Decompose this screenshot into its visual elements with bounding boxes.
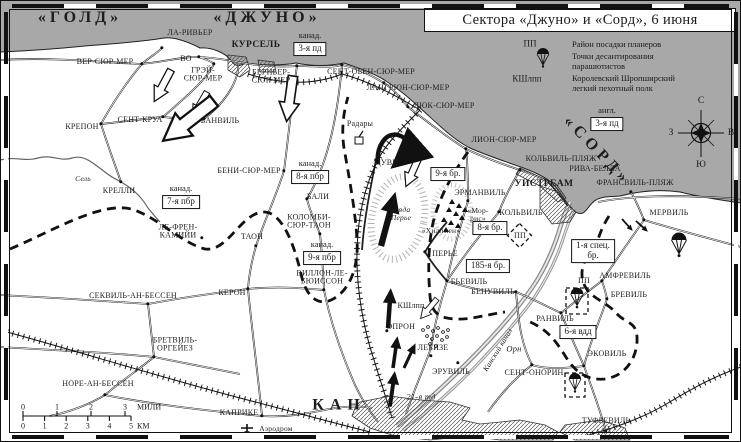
place-label: Радары xyxy=(347,120,373,128)
town-dot xyxy=(260,414,263,417)
place-label: ЛИОН-СЮР-МЕР xyxy=(472,136,537,144)
place-label: СЕНТ-ОБЕН-СЮР-МЕР xyxy=(327,68,415,76)
legend-text-glider: Район посадки планеров xyxy=(572,39,661,49)
scale-km-tick: 4 xyxy=(107,422,111,431)
place-label: ДУВР xyxy=(375,159,397,167)
place-label: БЕРНЬЕР- СЮР-МЕР xyxy=(252,69,291,86)
town-dot xyxy=(406,105,409,108)
place-label: Орн xyxy=(506,345,521,354)
place-label: ЭКОВИЛЬ xyxy=(588,350,627,358)
place-label: БАЛИ xyxy=(307,193,329,201)
town-dot xyxy=(254,244,257,247)
place-label: ЛЕ-ФРЕН- КАМИЙИ xyxy=(159,224,198,241)
place-label: БАНВИЛЬ xyxy=(201,117,240,125)
town-dot xyxy=(146,302,149,305)
unit-box: 9-я пбр xyxy=(303,251,341,265)
scale-km-tick: 5 xyxy=(129,422,133,431)
unit-box: 7-я пбр xyxy=(162,195,200,209)
place-label: ФРАНСВИЛЬ-ПЛЯЖ xyxy=(597,179,674,187)
place-label: КАПРИКЕ xyxy=(220,409,259,417)
unit-box: 1-я спец. бр. xyxy=(571,239,615,263)
place-label: БРЕВИЛЬ xyxy=(611,291,647,299)
unit-prefix-label: канад. xyxy=(311,239,334,249)
unit-prefix-label: канад. xyxy=(170,183,193,193)
scale-km-tick: 0 xyxy=(21,422,25,431)
place-label: ТУФРЕВИЛЬ xyxy=(582,417,631,425)
place-label: СЕНТ-ОНОРИН xyxy=(504,369,563,377)
town-dot xyxy=(318,232,321,235)
town-dot xyxy=(642,218,645,221)
place-label: ПЕРЬЕ xyxy=(432,250,458,258)
place-label: АМФРЕВИЛЬ xyxy=(599,272,650,280)
town-dot xyxy=(99,122,102,125)
place-label: БРЕТВИЛЬ- ОРГЕЙЕЗ xyxy=(153,337,197,354)
town-dot xyxy=(140,62,143,65)
scale-km-tick: 3 xyxy=(86,422,90,431)
town-dot xyxy=(629,190,632,193)
town-dot xyxy=(466,199,469,202)
unit-prefix-label: канад. xyxy=(299,158,322,168)
town-dot xyxy=(423,250,426,253)
town-dot xyxy=(197,55,200,58)
place-label: ЭРМАНВИЛЬ xyxy=(454,189,505,197)
unit-box: 8-я бр. xyxy=(472,221,507,235)
town-dot xyxy=(152,355,155,358)
place-label: БЬЕВИЛЬ xyxy=(451,278,488,286)
town-dot xyxy=(160,46,163,49)
place-label: КРЕЛЛИ xyxy=(103,187,135,195)
town-dot xyxy=(322,288,325,291)
scale-km-tick: 1 xyxy=(43,422,47,431)
place-label: КОЛОМБИ- СЮР-ТАОН xyxy=(287,214,331,231)
place-label: ВИЛЛОН-ЛЕ- БЮИССОН xyxy=(296,270,347,287)
unit-box: 9-я бр. xyxy=(430,167,465,181)
map-title: Сектора «Джуно» и «Сорд», 6 июня xyxy=(424,8,736,32)
place-label: ПП xyxy=(514,232,526,240)
unit-box: 8-я пбр xyxy=(291,170,329,184)
town-dot xyxy=(385,329,388,332)
town-dot xyxy=(445,279,448,282)
town-dot xyxy=(600,279,603,282)
sector-label: «ДЖУНО» xyxy=(213,9,320,27)
place-label: 21-я тд xyxy=(406,393,435,402)
legend-key-kshlpp: КШлпп xyxy=(512,74,541,85)
town-dot xyxy=(604,429,607,432)
legend-text-parachute: Точки десантирования парашютистов xyxy=(572,51,654,71)
scale-miles-tick: 2 xyxy=(89,403,93,412)
place-label: МЕРВИЛЬ xyxy=(650,209,689,217)
compass-east: В xyxy=(728,128,734,138)
historical-map-juno-sword: { "title": "Сектора «Джуно» и «Сорд», 6 … xyxy=(0,0,741,442)
place-label: ВО xyxy=(180,55,192,63)
scale-km-unit: КМ xyxy=(137,422,149,431)
place-label: ЛЮК-СЮР-МЕР xyxy=(414,102,475,110)
town-dot xyxy=(103,393,106,396)
town-dot xyxy=(456,361,459,364)
unit-prefix-label: канад. xyxy=(299,30,322,40)
place-label: ЛА-РИВЬЕР xyxy=(167,29,212,37)
place-label: ЭРУВИЛЬ xyxy=(432,368,470,376)
scale-km-tick: 2 xyxy=(64,422,68,431)
compass-north: С xyxy=(698,96,704,106)
place-label: КШлпп xyxy=(398,302,425,310)
scale-miles-unit: МИЛИ xyxy=(137,403,161,412)
compass-south: Ю xyxy=(696,160,706,170)
sector-label: «ГОЛД» xyxy=(38,9,122,27)
place-label: ПП xyxy=(578,277,590,285)
town-dot xyxy=(200,236,203,239)
place-label: ТАОН xyxy=(241,233,263,241)
town-dot xyxy=(295,64,298,67)
town-dot xyxy=(161,115,164,118)
place-label: «Хиллмен» xyxy=(422,227,460,235)
compass-west: З xyxy=(669,128,674,138)
unit-box: 3-я пд xyxy=(590,117,623,131)
scale-miles-tick: 3 xyxy=(123,403,127,412)
place-label: БЕНУВИЛЬ xyxy=(471,288,515,296)
town-dot xyxy=(605,297,608,300)
legend-text-kshlpp: Королевский Шропширский легкий пехотный … xyxy=(572,73,675,93)
place-label: Аэродром xyxy=(259,425,292,433)
place-label: СЕНТ-КРУА xyxy=(118,116,163,124)
unit-box: 185-я бр. xyxy=(466,259,510,273)
place-label: ЭПРОН xyxy=(387,323,415,331)
town-dot xyxy=(119,180,122,183)
place-label: КОЛЬВИЛЬ xyxy=(499,209,542,217)
unit-box: 6-я вдд xyxy=(559,325,596,339)
place-label: КРЕПОН xyxy=(65,123,98,131)
town-dot xyxy=(582,364,585,367)
place-label: КЕРОН xyxy=(218,289,245,297)
place-label: Сель xyxy=(75,175,91,183)
unit-box: 3-я пд xyxy=(293,42,326,56)
town-dot xyxy=(212,62,215,65)
place-label: ЛАНГРЮН-СЮР-МЕР xyxy=(367,84,450,92)
town-dot xyxy=(464,147,467,150)
town-dot xyxy=(246,287,249,290)
place-label: КОЛЬВИЛЬ-ПЛЯЖ xyxy=(526,155,597,163)
town-dot xyxy=(518,168,521,171)
unit-prefix-label: англ. xyxy=(598,105,616,115)
place-label: РАНВИЛЬ xyxy=(536,315,574,323)
place-label: СЕКВИЛЬ-АН-БЕССЕН xyxy=(89,292,177,300)
town-dot xyxy=(282,169,285,172)
place-label: КУРСЕЛЬ xyxy=(232,41,281,51)
place-label: ВЕР-СЮР-МЕР xyxy=(77,58,134,66)
scale-miles-tick: 1 xyxy=(55,403,59,412)
place-label: КАН xyxy=(312,398,366,415)
place-label: УИСТРЕАМ xyxy=(515,180,574,190)
place-label: БЕНИ-СЮР-МЕР xyxy=(217,167,280,175)
place-label: НОРЕ-АН-БЕССЕН xyxy=(62,380,133,388)
place-label: гряда Перье xyxy=(391,206,411,222)
scale-miles-tick: 0 xyxy=(21,403,25,412)
town-dot xyxy=(514,290,517,293)
place-label: ГРЭЙ- СЮР-МЕР xyxy=(184,67,223,84)
town-dot xyxy=(530,363,533,366)
place-label: ЛЕБИЗЕ xyxy=(418,344,449,352)
legend-key-glider: ПП xyxy=(524,39,537,50)
town-dot xyxy=(429,354,432,357)
